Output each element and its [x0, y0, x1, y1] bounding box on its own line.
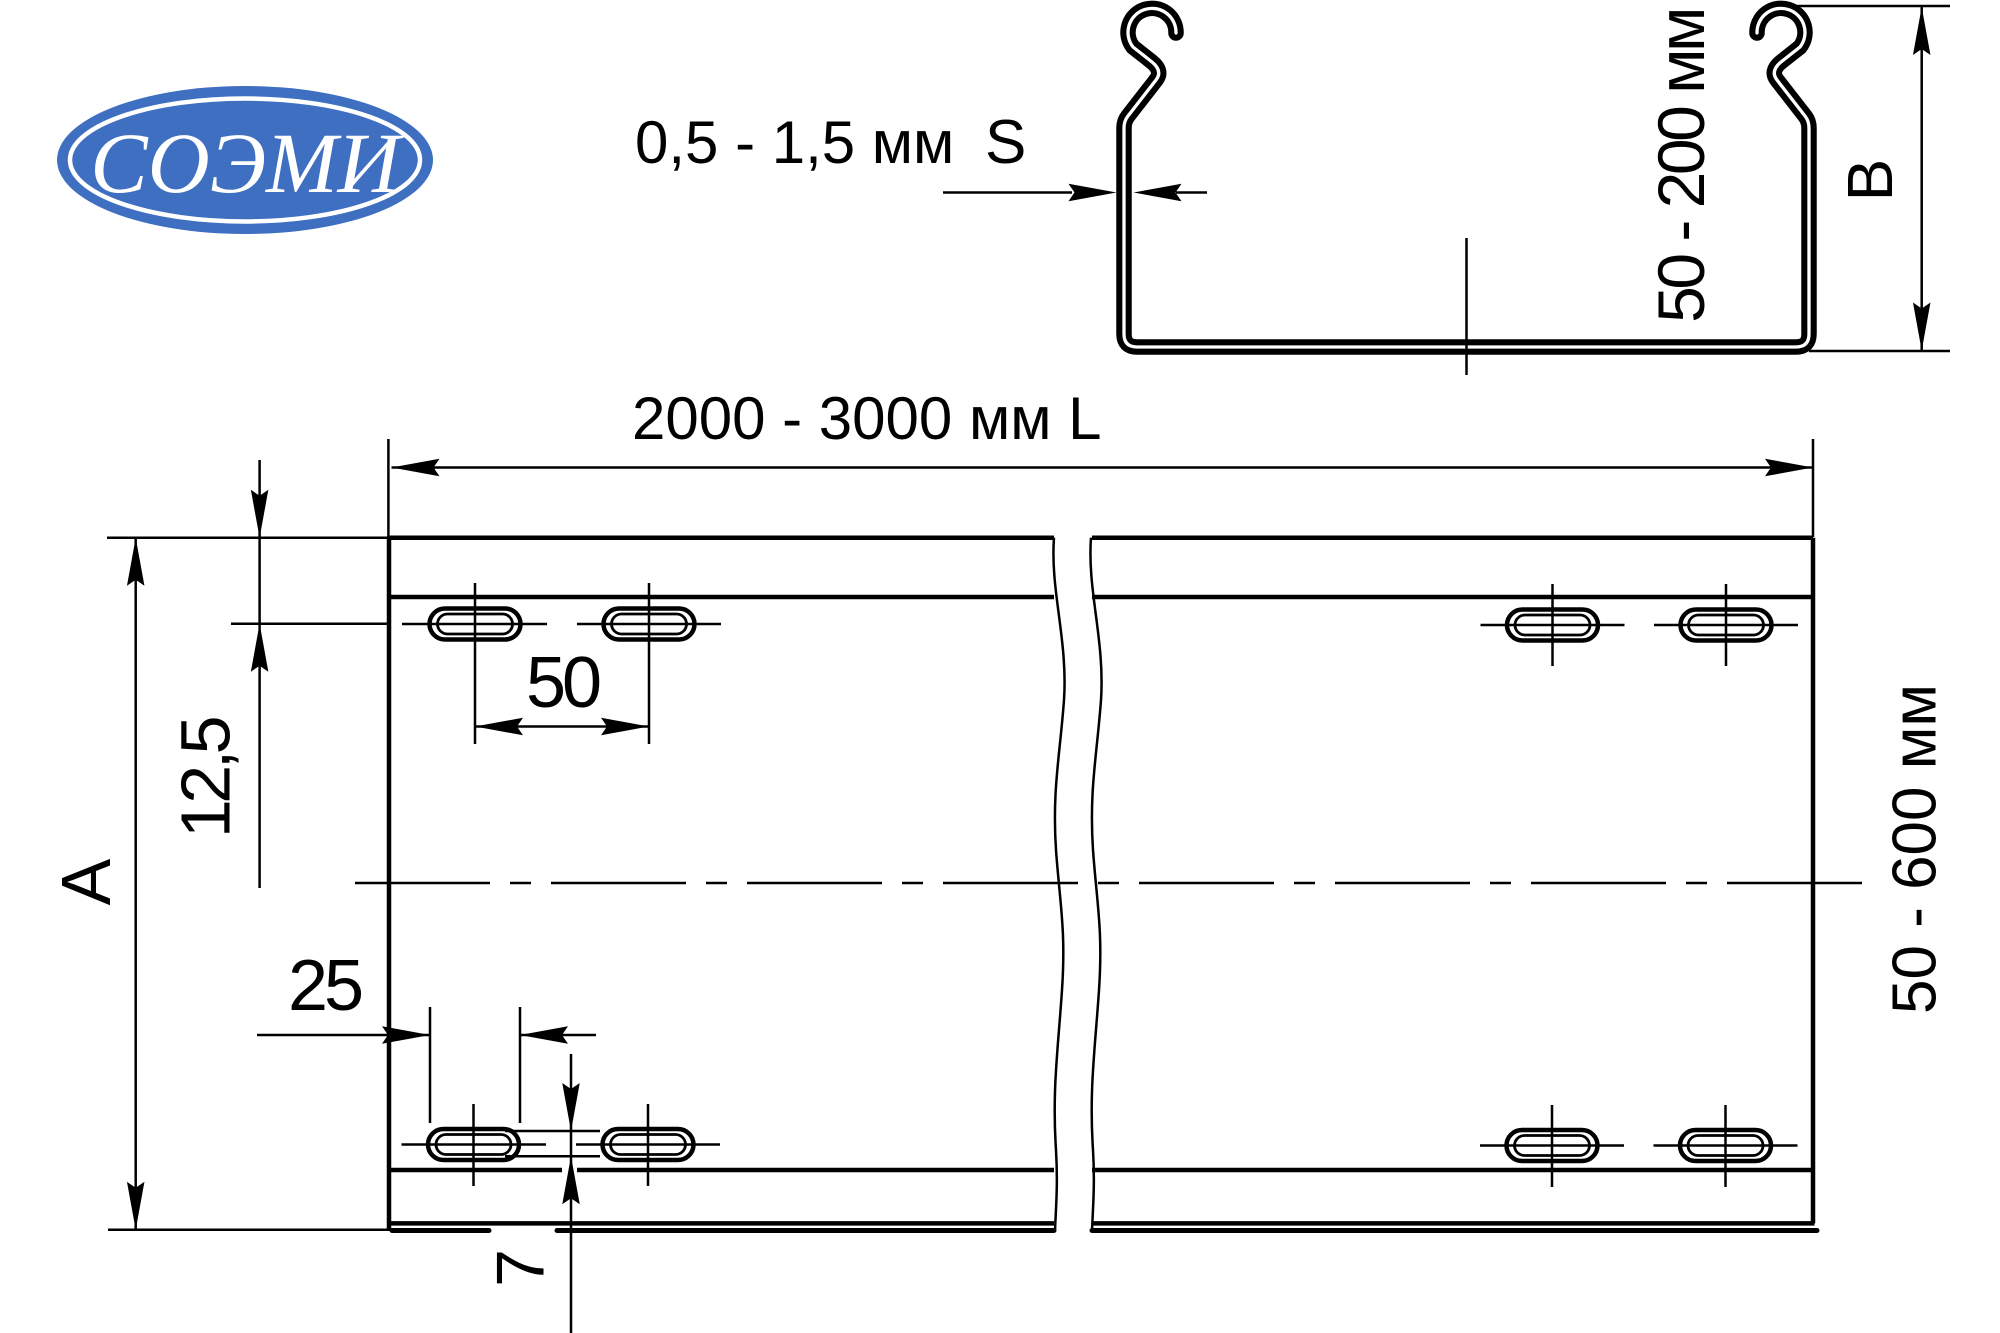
svg-text:50 - 200 мм: 50 - 200 мм	[1644, 10, 1718, 323]
svg-text:12,5: 12,5	[166, 718, 244, 838]
svg-text:2000 - 3000 мм L: 2000 - 3000 мм L	[632, 385, 1101, 452]
svg-text:7: 7	[482, 1249, 558, 1287]
svg-text:S: S	[985, 108, 1026, 177]
svg-text:0,5 - 1,5 мм: 0,5 - 1,5 мм	[635, 109, 954, 176]
svg-text:A: A	[47, 858, 125, 905]
svg-text:B: B	[1834, 159, 1906, 202]
svg-text:50 - 600 мм: 50 - 600 мм	[1880, 684, 1949, 1014]
svg-text:СОЭМИ: СОЭМИ	[90, 115, 404, 211]
svg-text:25: 25	[288, 946, 362, 1026]
svg-text:50: 50	[526, 643, 600, 723]
